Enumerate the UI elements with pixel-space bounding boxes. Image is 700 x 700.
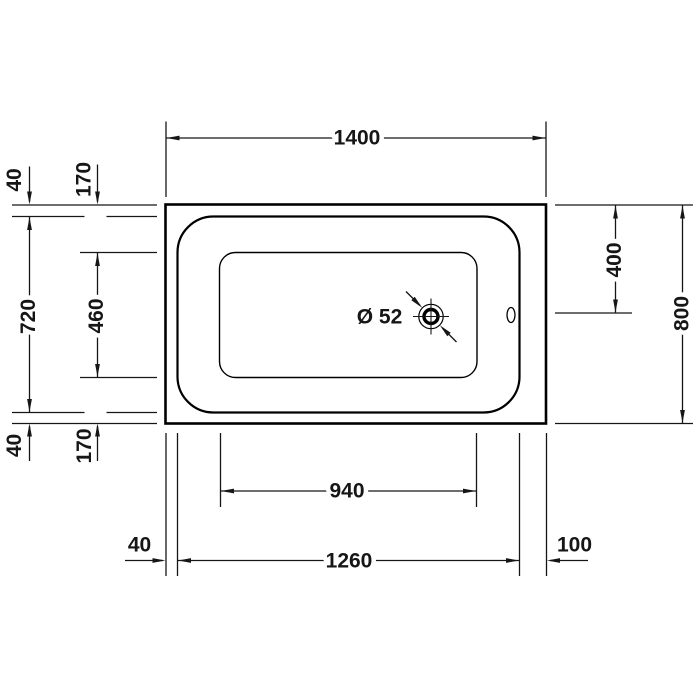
dim-label-overall-width: 1400 — [334, 127, 381, 150]
arrowhead — [221, 489, 234, 494]
drain-symbol-icon — [406, 292, 457, 343]
arrowhead — [680, 410, 685, 423]
arrowhead — [463, 489, 476, 494]
arrowhead — [95, 364, 100, 377]
arrowhead — [680, 206, 685, 219]
dim-label-basin-width: 940 — [329, 480, 364, 503]
tub-rim-edge — [178, 217, 520, 413]
dim-label-drain-center-from-top: 400 — [603, 242, 626, 277]
dim-label-rim-offset-bottom: 40 — [3, 434, 26, 457]
arrowhead — [95, 192, 100, 205]
dim-label-basin-offset-bottom: 170 — [73, 428, 96, 463]
dim-label-basin-depth: 460 — [85, 298, 108, 333]
arrowhead — [533, 136, 546, 141]
drain-leader-arrowhead-lower — [438, 324, 451, 337]
dim-rim-offset-left — [125, 558, 166, 563]
dim-rim-offset-top — [27, 167, 32, 205]
arrowhead — [153, 558, 166, 563]
arrowhead — [27, 424, 32, 437]
dim-basin-offset-top — [95, 165, 100, 205]
arrowhead — [27, 217, 32, 230]
arrowhead — [27, 192, 32, 205]
arrowhead — [613, 300, 618, 313]
drain-diameter-label: Ø 52 — [357, 306, 403, 329]
overflow-hole-icon — [507, 308, 515, 323]
bathtub-technical-drawing: 1400 40 170 720 460 40 170 400 800 940 1… — [0, 0, 700, 700]
dim-label-rim-offset-top: 40 — [3, 168, 26, 191]
arrowhead — [167, 136, 180, 141]
dim-label-overall-depth: 800 — [671, 296, 694, 331]
arrowhead — [547, 558, 560, 563]
dim-label-rim-offset-left: 40 — [128, 534, 151, 557]
arrowhead — [613, 206, 618, 219]
dim-label-rim-inner-width: 1260 — [326, 550, 373, 573]
dim-label-rim-inner-depth: 720 — [17, 299, 40, 334]
dim-label-rim-offset-right: 100 — [557, 534, 592, 557]
dim-rim-offset-bottom — [27, 424, 32, 462]
dim-rim-offset-right — [547, 558, 588, 563]
arrowhead — [506, 558, 519, 563]
dim-label-basin-offset-top: 170 — [73, 162, 96, 197]
arrowhead — [95, 253, 100, 266]
arrowhead — [178, 558, 191, 563]
arrowhead — [27, 399, 32, 412]
drain-leader-arrowhead-upper — [411, 297, 424, 310]
